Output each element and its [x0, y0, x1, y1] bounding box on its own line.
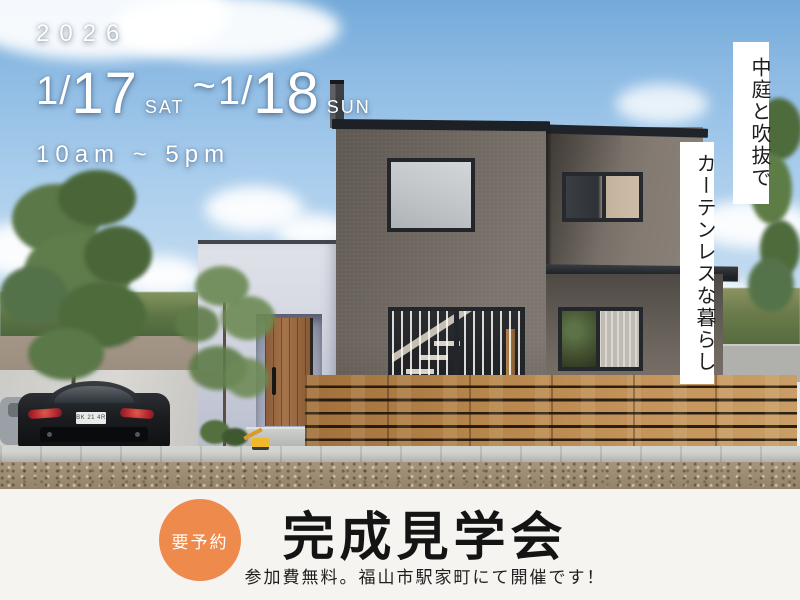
car-bumper — [40, 427, 148, 442]
reservation-badge: 要予約 — [159, 499, 241, 581]
toy-excavator — [252, 438, 269, 450]
bumper-detail — [135, 432, 140, 437]
window-pane-plant — [562, 311, 596, 367]
open-house-flyer: BK 21 4R 2026 1/ 17 SAT ~ 1/ 18 SUN — [0, 0, 800, 600]
event-dates: 1/ 17 SAT ~ 1/ 18 SUN — [36, 60, 379, 127]
event-hours: 10am ~ 5pm — [36, 141, 379, 169]
license-plate: BK 21 4R — [76, 412, 106, 424]
parked-car: BK 21 4R — [14, 381, 178, 455]
event-subtitle: 参加費無料。福山市駅家町にて開催です！ — [245, 563, 606, 588]
day-2: 18 — [253, 60, 320, 127]
event-title: 完成見学会 — [282, 495, 567, 570]
window-mullion — [596, 311, 600, 367]
window-mullion — [602, 176, 606, 218]
month-2: 1/ — [218, 69, 253, 114]
window-pane-louver — [599, 311, 639, 367]
event-year: 2026 — [36, 20, 379, 48]
vertical-copy-1: 中庭と吹抜で — [733, 42, 769, 204]
wood-slat-fence — [305, 375, 797, 448]
day-1: 17 — [71, 60, 138, 127]
weekday-2: SUN — [327, 97, 371, 118]
gravel-ground — [0, 462, 800, 489]
rear-lower-window — [558, 307, 643, 371]
house-photo: BK 21 4R 2026 1/ 17 SAT ~ 1/ 18 SUN — [0, 0, 800, 489]
cloud — [616, 84, 708, 124]
month-1: 1/ — [36, 69, 71, 114]
weekday-1: SAT — [145, 97, 185, 118]
vertical-copy-2: カーテンレスな暮らし — [680, 142, 714, 384]
front-upper-window — [387, 158, 475, 232]
reservation-badge-label: 要予約 — [172, 528, 229, 553]
bumper-detail — [47, 432, 52, 437]
event-date-overlay: 2026 1/ 17 SAT ~ 1/ 18 SUN 10am ~ 5pm — [36, 20, 379, 169]
date-separator: ~ — [193, 64, 216, 109]
rear-upper-window — [562, 172, 643, 222]
info-band: 要予約 完成見学会 参加費無料。福山市駅家町にて開催です！ — [0, 489, 800, 600]
